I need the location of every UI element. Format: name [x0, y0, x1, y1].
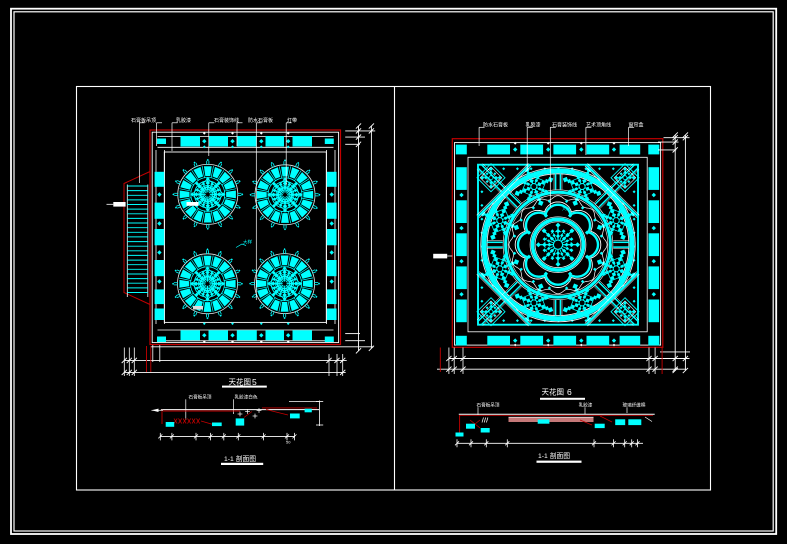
- svg-text:乳胶漆白色: 乳胶漆白色: [235, 394, 258, 401]
- svg-text:50: 50: [286, 440, 291, 445]
- svg-text:石膏板吊顶: 石膏板吊顶: [477, 402, 500, 409]
- svg-text:天花图: 天花图: [542, 386, 565, 396]
- svg-text:5: 5: [252, 377, 257, 387]
- svg-text:石膏板吊顶: 石膏板吊顶: [189, 394, 212, 401]
- svg-text:1-1 剖面图: 1-1 剖面图: [224, 454, 256, 463]
- svg-text:大样: 大样: [243, 239, 252, 246]
- svg-text:6: 6: [567, 387, 572, 397]
- svg-text:乳胶漆: 乳胶漆: [176, 117, 191, 124]
- svg-text:乳胶漆: 乳胶漆: [579, 402, 593, 409]
- svg-text:天花图: 天花图: [229, 377, 252, 387]
- svg-text:防水石膏板: 防水石膏板: [483, 121, 508, 128]
- svg-text:大样: 大样: [562, 205, 570, 211]
- svg-text:石膏装饰线: 石膏装饰线: [214, 117, 239, 124]
- svg-text:玻璃纤维棉: 玻璃纤维棉: [623, 402, 646, 409]
- svg-text:A1: A1: [566, 278, 572, 283]
- svg-text:1-1 剖面图: 1-1 剖面图: [538, 451, 570, 460]
